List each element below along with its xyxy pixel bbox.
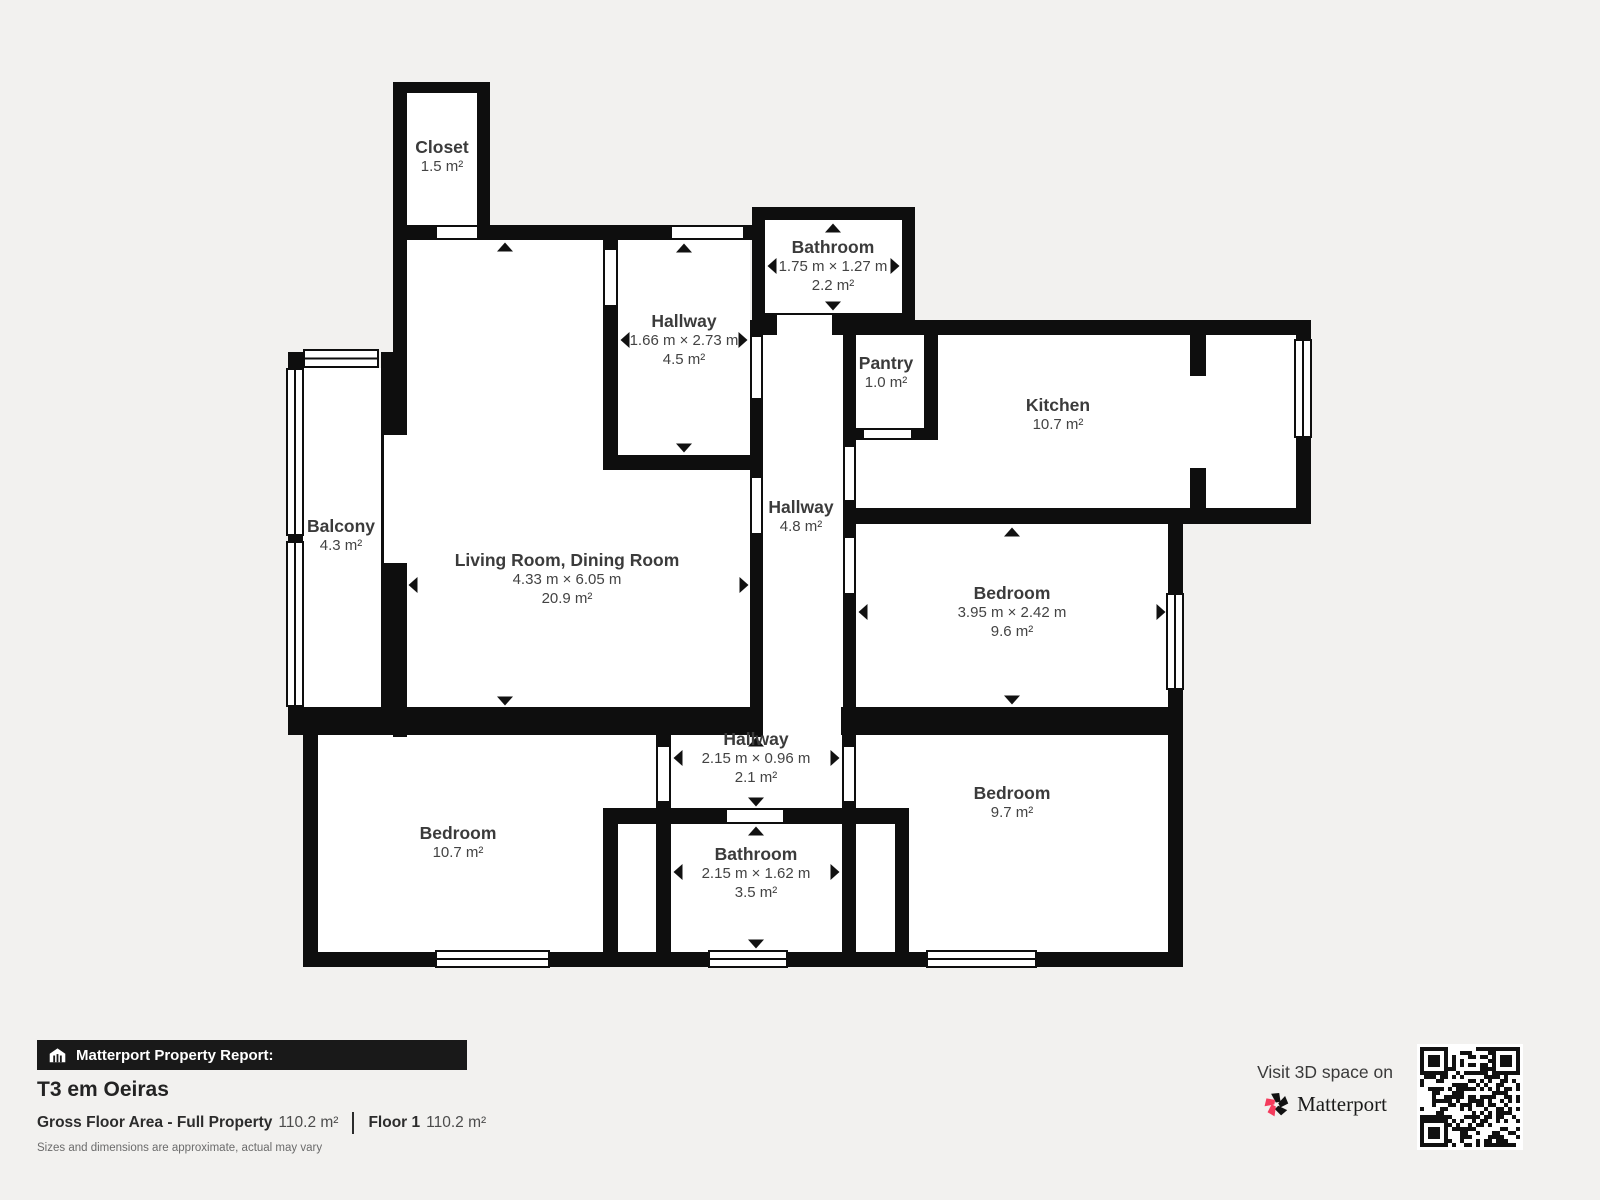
room-label-bathroom-bottom: Bathroom 2.15 m × 1.62 m 3.5 m² [702, 844, 811, 902]
wall [1190, 468, 1206, 508]
room-label-closet: Closet 1.5 m² [415, 137, 468, 177]
room-name: Bedroom [958, 583, 1067, 604]
room-area: 4.3 m² [307, 538, 375, 556]
visit-3d-text: Visit 3D space on [1240, 1062, 1410, 1083]
arrow-down-icon [1004, 696, 1020, 705]
matterport-logo-icon [1263, 1091, 1290, 1118]
room-area: 1.5 m² [415, 159, 468, 177]
wall [603, 808, 618, 967]
window-balcony-left-1 [286, 368, 304, 536]
wall [603, 455, 763, 470]
room-name: Living Room, Dining Room [455, 550, 680, 571]
property-title: T3 em Oeiras [37, 1078, 169, 1102]
room-name: Balcony [307, 516, 375, 537]
room-name: Bathroom [779, 237, 888, 258]
room-dims: 1.66 m × 2.73 m [630, 332, 739, 350]
shaft-left [618, 824, 656, 952]
window-bathroom-bottom [708, 950, 788, 968]
arrow-up-icon [497, 243, 513, 252]
room-label-bathroom-top: Bathroom 1.75 m × 1.27 m 2.2 m² [779, 237, 888, 295]
floor-value: 110.2 m² [426, 1114, 486, 1132]
wall [393, 82, 490, 93]
disclaimer-text: Sizes and dimensions are approximate, ac… [37, 1142, 322, 1154]
door-kitchen [845, 447, 854, 500]
room-label-bedroom-mid-right: Bedroom 3.95 m × 2.42 m 9.6 m² [958, 583, 1067, 641]
shaft-right [856, 824, 895, 952]
room-name: Hallway [768, 497, 833, 518]
floor-area-info: Gross Floor Area - Full Property 110.2 m… [37, 1112, 486, 1134]
gross-floor-area-value: 110.2 m² [278, 1114, 338, 1132]
wall [1168, 734, 1183, 967]
room-dims: 4.33 m × 6.05 m [455, 571, 680, 589]
arrow-right-icon [740, 577, 749, 593]
door-bathroom-bottom [727, 810, 783, 822]
arrow-left-icon [674, 864, 683, 880]
arrow-left-icon [674, 750, 683, 766]
room-label-balcony: Balcony 4.3 m² [307, 516, 375, 556]
door-bedroom-bottom-right [844, 747, 854, 801]
arrow-right-icon [831, 750, 840, 766]
arrow-down-icon [497, 697, 513, 706]
matterport-brand: Matterport [1240, 1091, 1410, 1118]
room-area: 10.7 m² [1026, 417, 1090, 435]
window-bedroom-bottom-left [435, 950, 550, 968]
room-area: 4.5 m² [630, 351, 739, 369]
divider [352, 1112, 354, 1134]
door-entry [672, 227, 743, 238]
door-hallway-mid-top [752, 337, 761, 398]
room-label-bedroom-bottom-left: Bedroom 10.7 m² [420, 823, 497, 863]
gross-floor-area-label: Gross Floor Area - Full Property [37, 1114, 272, 1132]
arrow-down-icon [676, 444, 692, 453]
room-area: 2.2 m² [779, 277, 888, 295]
arrow-up-icon [825, 224, 841, 233]
room-name: Hallway [630, 311, 739, 332]
room-name: Bathroom [702, 844, 811, 865]
room-area: 3.5 m² [702, 884, 811, 902]
room-label-hallway-top: Hallway 1.66 m × 2.73 m 4.5 m² [630, 311, 739, 369]
report-bar: Matterport Property Report: [37, 1040, 467, 1070]
floor-plan: Closet 1.5 m² Hallway 1.66 m × 2.73 m 4.… [0, 0, 1600, 1010]
room-label-hallway-mid: Hallway 4.8 m² [768, 497, 833, 537]
qr-code-image [1420, 1047, 1520, 1147]
visit-3d-block: Visit 3D space on Matterport [1240, 1062, 1410, 1118]
room-area: 2.1 m² [702, 769, 811, 787]
room-name: Pantry [859, 353, 913, 374]
room-label-pantry: Pantry 1.0 m² [859, 353, 913, 393]
arrow-left-icon [621, 332, 630, 348]
wall [924, 335, 938, 440]
arrow-down-icon [748, 798, 764, 807]
arrow-left-icon [768, 258, 777, 274]
window-balcony-top [303, 349, 379, 368]
window-balcony-left-2 [286, 541, 304, 707]
room-dims: 1.75 m × 1.27 m [779, 258, 888, 276]
house-icon [49, 1047, 66, 1064]
wall [303, 707, 318, 967]
door-bedroom-mid-right [845, 538, 854, 593]
room-living-upper [407, 240, 603, 707]
wall [393, 82, 407, 737]
room-dims: 2.15 m × 0.96 m [702, 750, 811, 768]
door-living [752, 478, 761, 533]
room-name: Hallway [702, 729, 811, 750]
arrow-right-icon [1157, 604, 1166, 620]
floor-label: Floor 1 [368, 1114, 420, 1132]
door-bathroom-top [777, 315, 832, 337]
door-bedroom-bottom-left [658, 747, 669, 801]
arrow-up-icon [676, 244, 692, 253]
wall [1190, 335, 1206, 376]
arrow-up-icon [748, 827, 764, 836]
room-area: 4.8 m² [768, 519, 833, 537]
matterport-wordmark: Matterport [1297, 1092, 1387, 1117]
room-label-bedroom-bottom-right: Bedroom 9.7 m² [974, 783, 1051, 823]
room-area: 9.6 m² [958, 623, 1067, 641]
room-label-kitchen: Kitchen 10.7 m² [1026, 395, 1090, 435]
wall [895, 808, 909, 967]
qr-code [1417, 1044, 1523, 1150]
wall [843, 320, 856, 737]
room-name: Closet [415, 137, 468, 158]
door-pantry [864, 430, 911, 438]
report-bar-title: Matterport Property Report: [76, 1047, 274, 1064]
arrow-down-icon [825, 302, 841, 311]
room-label-living-dining: Living Room, Dining Room 4.33 m × 6.05 m… [455, 550, 680, 608]
door-closet [437, 227, 477, 238]
arrow-down-icon [748, 940, 764, 949]
wall [843, 508, 1311, 524]
room-area: 20.9 m² [455, 590, 680, 608]
room-area: 1.0 m² [859, 375, 913, 393]
arrow-right-icon [831, 864, 840, 880]
room-label-hallway-bottom: Hallway 2.15 m × 0.96 m 2.1 m² [702, 729, 811, 787]
room-name: Kitchen [1026, 395, 1090, 416]
arrow-left-icon [409, 577, 418, 593]
door-balcony-slider [384, 435, 407, 563]
window-bedroom-mid-right [1166, 593, 1184, 690]
window-kitchen [1294, 339, 1312, 438]
room-name: Bedroom [420, 823, 497, 844]
wall [477, 82, 490, 225]
arrow-up-icon [1004, 528, 1020, 537]
arrow-left-icon [859, 604, 868, 620]
arrow-right-icon [891, 258, 900, 274]
room-dims: 2.15 m × 1.62 m [702, 865, 811, 883]
window-bedroom-bottom-right [926, 950, 1037, 968]
door-hallway-top [605, 250, 616, 305]
room-area: 10.7 m² [420, 845, 497, 863]
room-dims: 3.95 m × 2.42 m [958, 604, 1067, 622]
room-area: 9.7 m² [974, 805, 1051, 823]
room-name: Bedroom [974, 783, 1051, 804]
arrow-right-icon [739, 332, 748, 348]
